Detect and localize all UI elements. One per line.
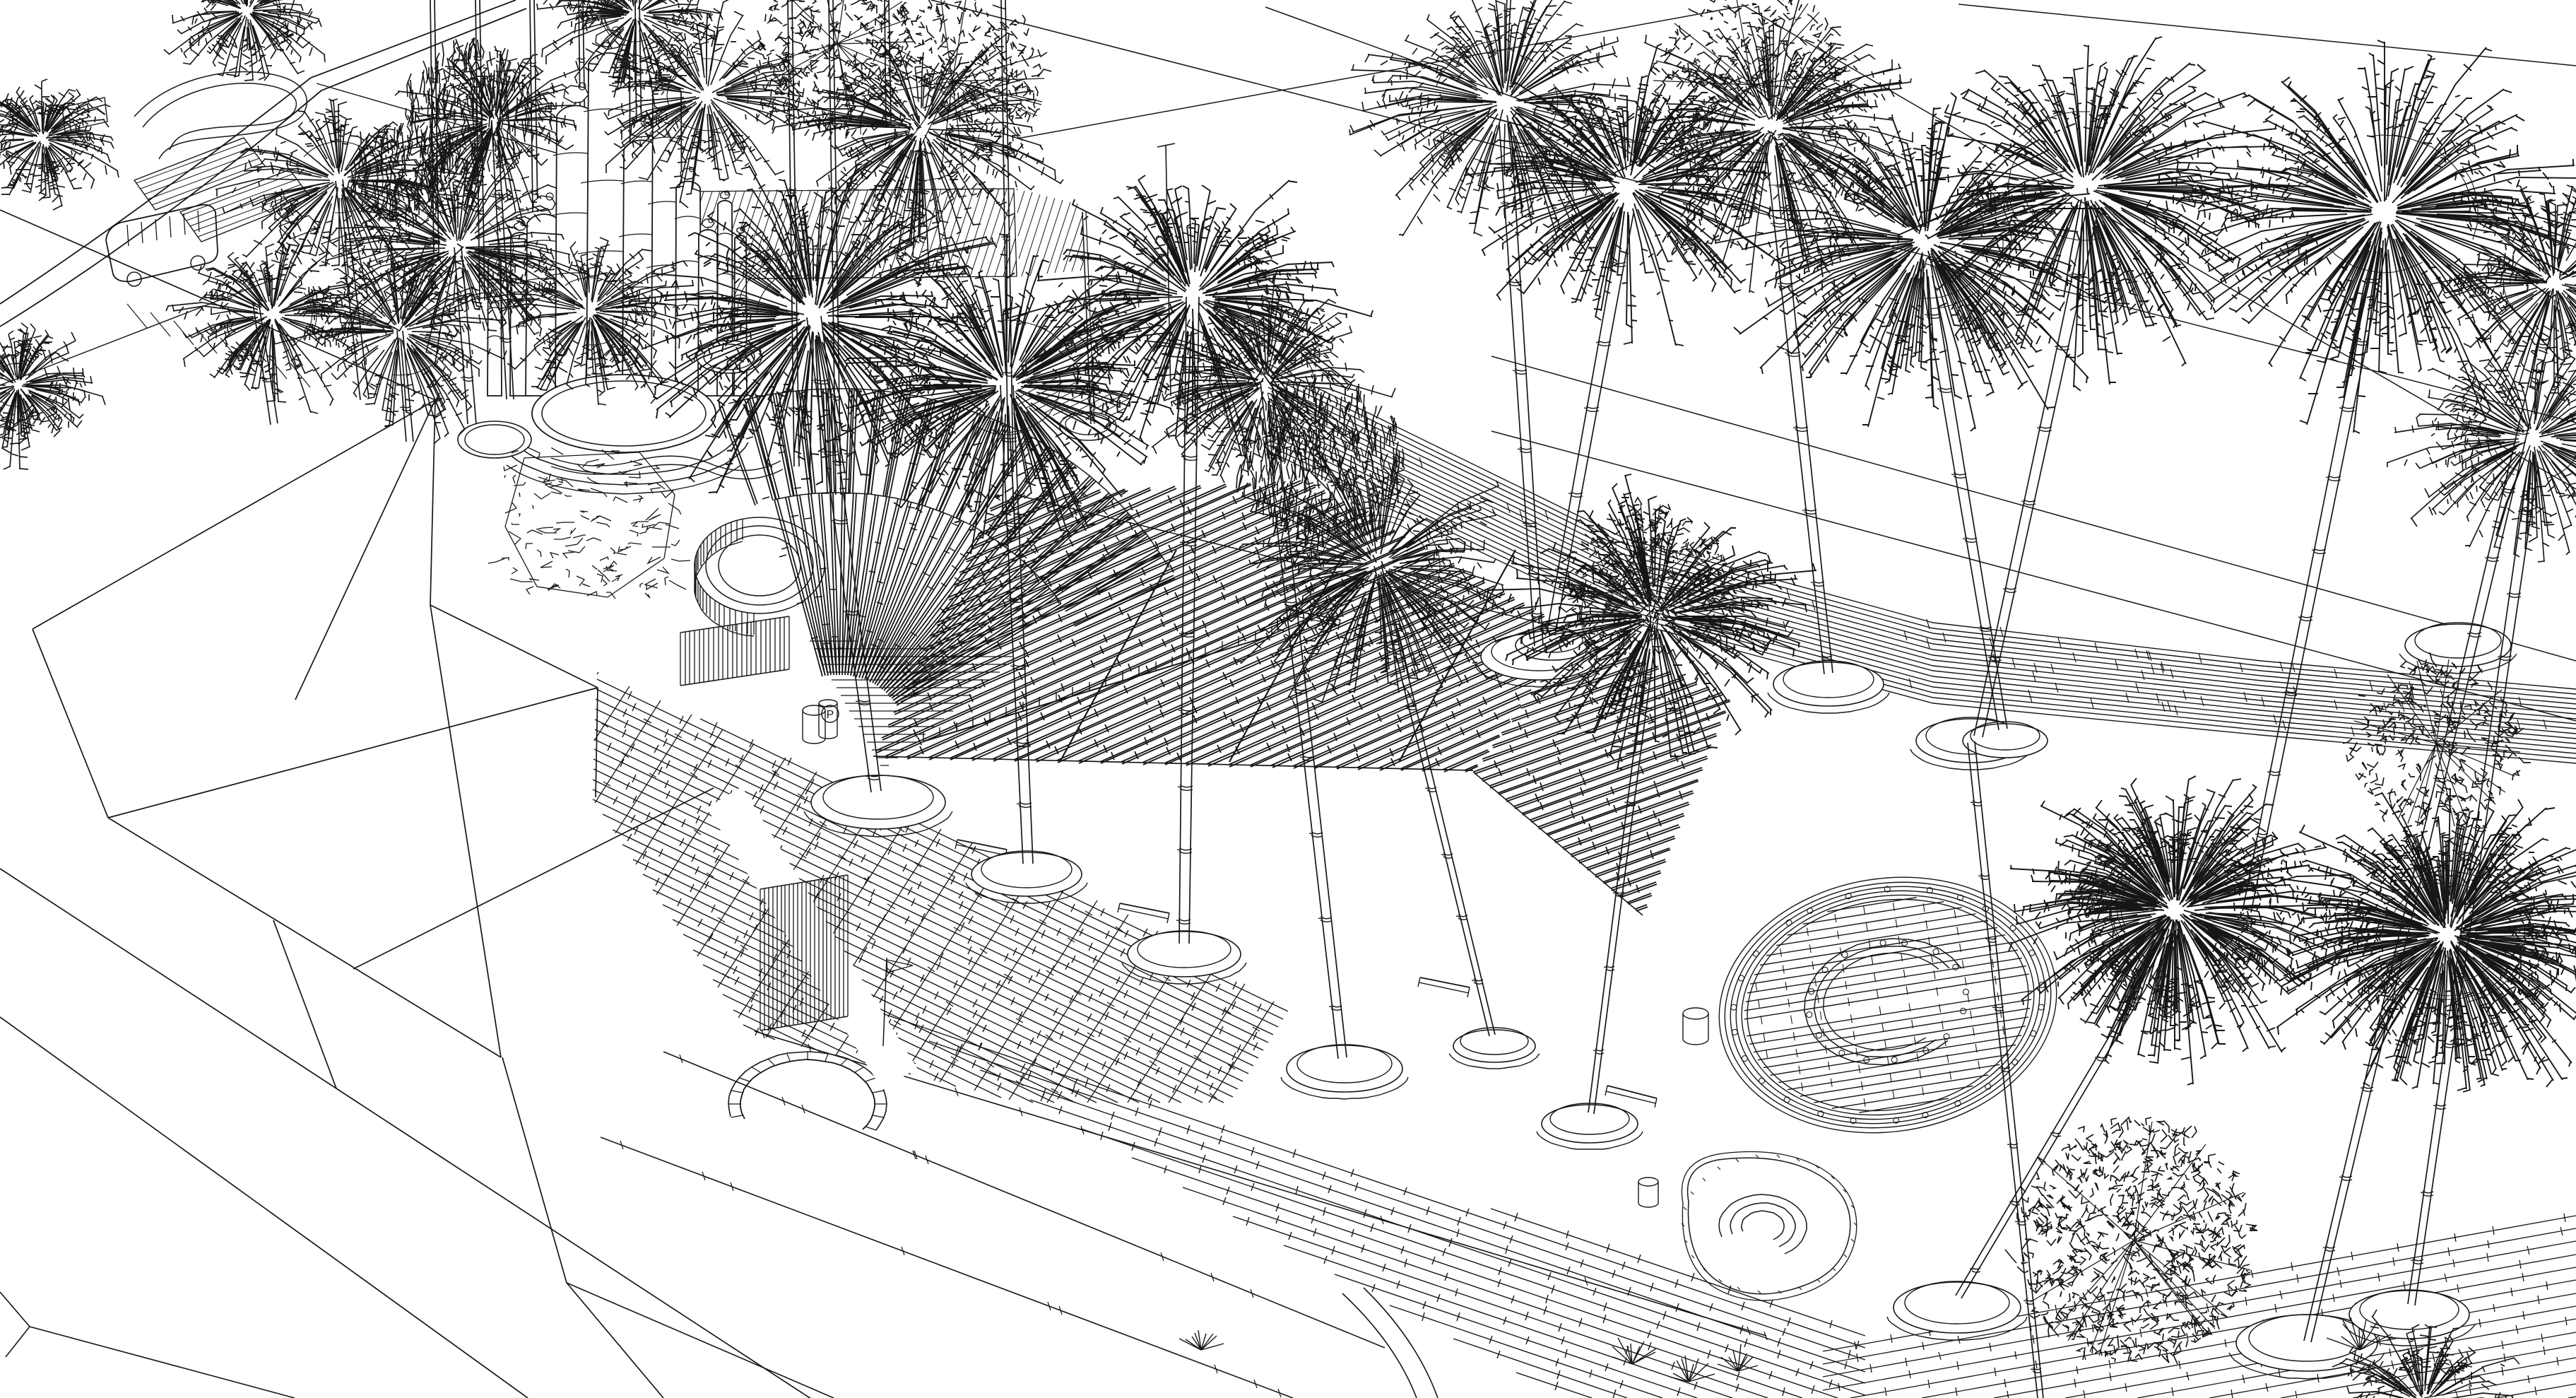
svg-text:P: P xyxy=(827,709,834,721)
